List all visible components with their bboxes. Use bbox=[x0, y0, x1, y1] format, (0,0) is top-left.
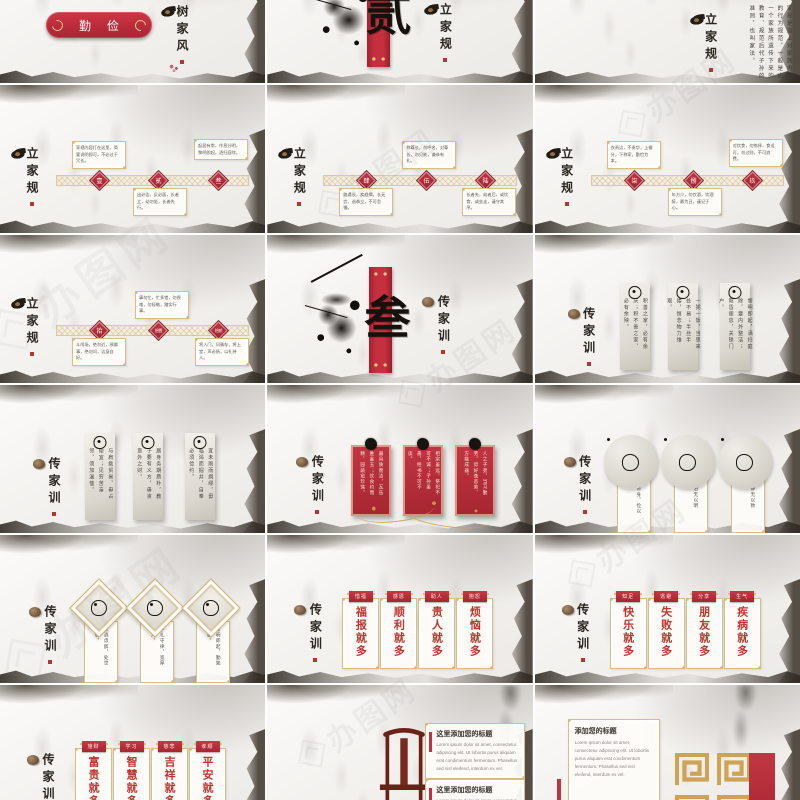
tab-card: 孝顺平安就多 bbox=[189, 748, 226, 800]
gold-flower-line-art bbox=[357, 499, 497, 529]
ink-seal-icon bbox=[203, 600, 219, 616]
card-tab: 感恩 bbox=[387, 591, 411, 602]
grid-cell: 传家训 与肩挑贸易，毋占便宜；见穷苦亲邻，须加温恤。 居身务期质朴，教子要有义方… bbox=[0, 385, 265, 533]
ink-walnut-icon bbox=[27, 750, 39, 769]
red-rectangle-block bbox=[749, 753, 775, 800]
grid-cell: 勤俭 树家风 bbox=[0, 0, 265, 83]
ink-walnut-icon bbox=[296, 452, 308, 471]
mountain-top-left bbox=[267, 535, 405, 561]
grid-cell: 叁 传家训 bbox=[267, 235, 532, 383]
slide-6-timeline[interactable]: 立家规 柒 捌 玖 衣贵洁，不贵华，上循分，下称家，勤俭为本。 对饮食，勿拣择，… bbox=[535, 85, 800, 233]
side-title-group: 立家规 bbox=[26, 147, 38, 206]
slide-15-tab-cards[interactable]: 传家训 知足快乐就多 逃避失败就多 分享朋友就多 生气疾病就多 bbox=[535, 535, 800, 683]
scroll-card: 黎明即起，洒扫庭除，要内外整洁；既昏便息，关锁门户。 bbox=[720, 283, 750, 370]
tab-card: 生气疾病就多 bbox=[724, 598, 761, 669]
ink-seal-icon bbox=[94, 436, 107, 449]
ink-walnut-icon bbox=[564, 452, 576, 471]
card-tab: 慈悲 bbox=[157, 741, 181, 752]
ink-bird-icon bbox=[424, 0, 439, 19]
mountain-top-left bbox=[0, 385, 138, 411]
scroll-card: 一粥一饭，当思来处不易；半丝半缕，恒念物力维艰。 bbox=[668, 283, 698, 370]
grid-cell: 添加您的标题 Lorem ipsum dolor sit amet, conse… bbox=[535, 685, 800, 800]
timeline-text-box: 将入门，问孰存，将上堂，声必扬，以礼待人。 bbox=[195, 338, 249, 366]
slide-title: 传家训 bbox=[48, 457, 60, 516]
card-value: 烦恼就多 bbox=[469, 606, 480, 668]
card-tab: 惜福 bbox=[349, 591, 373, 602]
timeline-band: 壹 贰 叁 bbox=[56, 175, 249, 186]
slide-11-red-cards[interactable]: 传家训 器具质而洁，瓦缶胜金玉；饮食约而精，园蔬愈珍馐。 祖宗虽远，祭祀不可不诚… bbox=[267, 385, 532, 533]
side-title-group: 传家训 bbox=[309, 603, 321, 662]
section-banner: 勤俭 bbox=[46, 12, 152, 38]
fret-pattern-icon bbox=[675, 753, 709, 787]
card-value: 吉祥就多 bbox=[164, 756, 175, 800]
fret-pattern-group bbox=[675, 753, 751, 800]
slide-title: 立家规 bbox=[26, 147, 38, 206]
tab-card: 逃避失败就多 bbox=[648, 598, 685, 669]
marker-numeral: 贰 bbox=[152, 174, 165, 187]
mountain-top-left bbox=[535, 235, 673, 261]
slide-3-vertical-text[interactable]: 立家规 家规是指上对家族内人的行为规范，一般是由一个家族所遗传下来的教育、规范后… bbox=[535, 0, 800, 83]
timeline-text-box: 衣贵洁，不贵华，上循分，下称家，勤俭为本。 bbox=[607, 141, 661, 169]
timeline-text-box: 斗闹场，绝勿近，邪僻事，绝勿问，洁身自好。 bbox=[72, 338, 126, 366]
slide-8-section-cover[interactable]: 叁 传家训 bbox=[267, 235, 532, 383]
side-title-group: 立家规 bbox=[293, 147, 305, 206]
ink-seal-icon bbox=[469, 438, 481, 450]
ink-walnut-icon bbox=[33, 454, 45, 473]
timeline-text-box: 起居有常，作息分明，黎明即起，洒扫庭除。 bbox=[194, 139, 248, 160]
marker-numeral: 拾贰 bbox=[212, 324, 225, 337]
card-text: 居身务期质朴，教子要有义方，毋贪意外之财。 bbox=[134, 448, 163, 500]
side-title-group: 立家规 bbox=[705, 13, 717, 72]
slide-title: 传家训 bbox=[42, 753, 54, 800]
ink-seal-icon bbox=[91, 600, 107, 616]
mountain-top-left bbox=[0, 235, 138, 261]
ink-seal-icon bbox=[365, 438, 377, 450]
slide-title: 立家规 bbox=[439, 3, 451, 62]
side-title-group: 传家训 bbox=[577, 603, 589, 662]
marker-numeral: 捌 bbox=[687, 174, 700, 187]
ink-walnut-icon bbox=[562, 600, 574, 619]
tab-card: 知足快乐就多 bbox=[610, 598, 647, 669]
slide-12-circle-cards[interactable]: 传家训 静以修身，俭以养德。 非淡泊无以明志。 非宁静无以致远。 bbox=[535, 385, 800, 533]
card-tab: 助人 bbox=[425, 591, 449, 602]
grid-cell: 这里添加您的标题 Lorem ipsum dolor sit amet, con… bbox=[267, 685, 532, 800]
section-number: 贰 bbox=[365, 0, 411, 37]
timeline-band: 柒 捌 玖 bbox=[591, 175, 784, 186]
grid-cell: 立家规 肆 伍 陆 称尊长，勿呼名，对尊长，勿见能，谦恭有礼。 路遇长，疾趋揖，… bbox=[267, 85, 532, 233]
card-value: 顺利就多 bbox=[393, 606, 404, 668]
card-value: 贵人就多 bbox=[431, 606, 442, 668]
side-title-group: 树家风 bbox=[176, 5, 188, 64]
slide-9-scroll-cards[interactable]: 传家训 积善之家，必有余庆；积不善之家，必有余殃。 一粥一饭，当思来处不易；半丝… bbox=[535, 235, 800, 383]
timeline-text-box: 事勿忙，忙多错，勿畏难，勿轻略，踏实行事。 bbox=[135, 291, 189, 319]
slide-5-timeline[interactable]: 立家规 肆 伍 陆 称尊长，勿呼名，对尊长，勿见能，谦恭有礼。 路遇长，疾趋揖，… bbox=[267, 85, 532, 233]
slide-13-diamond-cards[interactable]: 传家训 饮酒毋醉，处世毋骄。 学礼守律，宽厚待人。 黎明即起，勤勉自强。 bbox=[0, 535, 265, 683]
marker-numeral: 玖 bbox=[746, 174, 759, 187]
tab-card: 学习智慧就多 bbox=[113, 748, 150, 800]
grid-cell: 贰 立家规 bbox=[267, 0, 532, 83]
slide-title: 传家训 bbox=[579, 455, 591, 514]
mountain-top-left bbox=[267, 85, 405, 111]
tab-card: 感恩顺利就多 bbox=[380, 598, 417, 669]
ink-seal-icon bbox=[736, 454, 753, 471]
tab-card: 分享朋友就多 bbox=[686, 598, 723, 669]
mountain-top-left bbox=[535, 535, 673, 561]
side-title-group: 传家训 bbox=[42, 753, 54, 800]
scroll-card: 居身务期质朴，教子要有义方，毋贪意外之财。 bbox=[133, 433, 163, 520]
ink-seal-icon bbox=[147, 600, 163, 616]
card-value: 疾病就多 bbox=[737, 606, 748, 668]
slide-17-text-boxes[interactable]: 这里添加您的标题 Lorem ipsum dolor sit amet, con… bbox=[267, 685, 532, 800]
card-text: 黎明即起，洒扫庭除，要内外整洁；既昏便息，关锁门户。 bbox=[716, 298, 754, 350]
marker-numeral: 叁 bbox=[212, 174, 225, 187]
grid-cell: 立家规 家规是指上对家族内人的行为规范，一般是由一个家族所遗传下来的教育、规范后… bbox=[535, 0, 800, 83]
ink-walnut-icon bbox=[29, 602, 41, 621]
slide-14-tab-cards[interactable]: 传家训 惜福福报就多 感恩顺利就多 助人贵人就多 抱怨烦恼就多 bbox=[267, 535, 532, 683]
timeline-text-box: 出必告，反必面，长者立，幼勿坐，长者先行。 bbox=[133, 188, 187, 216]
timeline-band: 拾 拾壹 拾贰 bbox=[56, 325, 249, 336]
ink-circle-medallion bbox=[718, 435, 772, 489]
ink-bird-icon bbox=[278, 144, 293, 163]
box-title: 添加您的标题 bbox=[575, 726, 653, 736]
tab-card: 慈悲吉祥就多 bbox=[151, 748, 188, 800]
slide-4-timeline[interactable]: 立家规 壹 贰 叁 家规内容打在这里，简要说明即可，不必过于冗长。 起居有常，作… bbox=[0, 85, 265, 233]
marker-numeral: 陆 bbox=[479, 174, 492, 187]
side-title-group: 传家训 bbox=[583, 307, 595, 366]
ink-walnut-icon bbox=[568, 304, 580, 323]
mountain-top-left bbox=[535, 385, 673, 411]
mountain-top-left bbox=[267, 385, 405, 411]
side-title-group: 传家训 bbox=[437, 295, 449, 354]
slide-title: 传家训 bbox=[577, 603, 589, 662]
ink-seal-icon bbox=[194, 436, 207, 449]
card-text: 宜未雨而绸缪，毋临渴而掘井，自奉必须俭约。 bbox=[186, 448, 215, 500]
card-text: 积善之家，必有余庆；积不善之家，必有余殃。 bbox=[620, 298, 649, 350]
slide-title: 传家训 bbox=[44, 605, 56, 664]
card-tab: 生气 bbox=[730, 591, 754, 602]
ink-bird-icon bbox=[11, 294, 26, 313]
ink-seal-icon bbox=[417, 438, 429, 450]
timeline-text-box: 家规内容打在这里，简要说明即可，不必过于冗长。 bbox=[72, 141, 126, 169]
marker-numeral: 柒 bbox=[628, 174, 641, 187]
card-text: 一粥一饭，当思来处不易；半丝半缕，恒念物力维艰。 bbox=[664, 298, 702, 350]
grid-cell: 传家训 静以修身，俭以养德。 非淡泊无以明志。 非宁静无以致远。 bbox=[535, 385, 800, 533]
card-tab: 施财 bbox=[81, 741, 105, 752]
scroll-card: 积善之家，必有余庆；积不善之家，必有余殃。 bbox=[620, 283, 650, 370]
ink-seal-icon bbox=[142, 436, 155, 449]
box-title: 这里添加您的标题 bbox=[436, 729, 518, 739]
slide-title: 立家规 bbox=[561, 147, 573, 206]
slide-title: 立家规 bbox=[26, 297, 38, 356]
ink-walnut-icon bbox=[422, 292, 434, 311]
ink-seal-icon bbox=[679, 454, 696, 471]
fret-pattern-icon bbox=[717, 753, 751, 787]
card-tab: 抱怨 bbox=[463, 591, 487, 602]
grid-cell: 传家训 知足快乐就多 逃避失败就多 分享朋友就多 生气疾病就多 bbox=[535, 535, 800, 683]
ink-bird-icon bbox=[690, 10, 705, 29]
slide-7-timeline[interactable]: 立家规 拾 拾壹 拾贰 事勿忙，忙多错，勿畏难，勿轻略，踏实行事。 斗闹场，绝勿… bbox=[0, 235, 265, 383]
card-value: 平安就多 bbox=[202, 756, 213, 800]
slides-grid: 勤俭 树家风 贰 立家规 立家 bbox=[0, 0, 800, 800]
mountain-top-left bbox=[0, 85, 138, 111]
card-value: 福报就多 bbox=[355, 606, 366, 668]
box-title: 这里添加您的标题 bbox=[436, 785, 518, 795]
card-tab: 逃避 bbox=[654, 591, 678, 602]
content-box: 这里添加您的标题 Lorem ipsum dolor sit amet, con… bbox=[425, 779, 525, 800]
side-title-group: 立家规 bbox=[561, 147, 573, 206]
marker-numeral: 拾壹 bbox=[152, 324, 165, 337]
side-title-group: 传家训 bbox=[579, 455, 591, 514]
content-box: 这里添加您的标题 Lorem ipsum dolor sit amet, con… bbox=[425, 723, 525, 779]
marker-numeral: 伍 bbox=[420, 174, 433, 187]
marker-numeral: 壹 bbox=[93, 174, 106, 187]
slide-title: 传家训 bbox=[583, 307, 595, 366]
section-number: 叁 bbox=[364, 295, 410, 341]
ink-bird-icon bbox=[11, 144, 26, 163]
mountain-top-left bbox=[0, 535, 138, 561]
scroll-card: 与肩挑贸易，毋占便宜；见穷苦亲邻，须加温恤。 bbox=[85, 433, 115, 520]
red-accent-bar bbox=[429, 788, 432, 800]
slide-16-tab-cards[interactable]: 传家训 施财富贵就多 学习智慧就多 慈悲吉祥就多 孝顺平安就多 bbox=[0, 685, 265, 800]
grid-cell: 立家规 壹 贰 叁 家规内容打在这里，简要说明即可，不必过于冗长。 起居有常，作… bbox=[0, 85, 265, 233]
tab-card: 惜福福报就多 bbox=[342, 598, 379, 669]
mountain-top-left bbox=[267, 685, 405, 711]
plum-blossom-icon bbox=[168, 63, 180, 72]
marker-numeral: 肆 bbox=[360, 174, 373, 187]
fret-pattern-icon bbox=[675, 795, 709, 800]
ink-seal-icon bbox=[628, 286, 641, 299]
slide-title: 树家风 bbox=[176, 5, 188, 64]
box-body: Lorem ipsum dolor sit amet, consectetur … bbox=[436, 741, 518, 773]
mountain-top-left bbox=[535, 685, 673, 711]
card-tab: 学习 bbox=[119, 741, 143, 752]
side-title-group: 传家训 bbox=[44, 605, 56, 664]
tab-card: 施财富贵就多 bbox=[75, 748, 112, 800]
slide-10-scroll-cards[interactable]: 传家训 与肩挑贸易，毋占便宜；见穷苦亲邻，须加温恤。 居身务期质朴，教子要有义方… bbox=[0, 385, 265, 533]
grid-cell: 传家训 施财富贵就多 学习智慧就多 慈悲吉祥就多 孝顺平安就多 bbox=[0, 685, 265, 800]
grid-cell: 传家训 器具质而洁，瓦缶胜金玉；饮食约而精，园蔬愈珍馐。 祖宗虽远，祭祀不可不诚… bbox=[267, 385, 532, 533]
timeline-text-box: 对饮食，勿拣择，食适可，勿过则，不可浪费。 bbox=[729, 139, 783, 167]
box-body: Lorem ipsum dolor sit amet, consectetur … bbox=[575, 739, 653, 778]
slide-title: 传家训 bbox=[311, 455, 323, 514]
side-title-group: 传家训 bbox=[311, 455, 323, 514]
grid-cell: 传家训 惜福福报就多 感恩顺利就多 助人贵人就多 抱怨烦恼就多 bbox=[267, 535, 532, 683]
grid-cell: 传家训 饮酒毋醉，处世毋骄。 学礼守律，宽厚待人。 黎明即起，勤勉自强。 bbox=[0, 535, 265, 683]
mountain-top-left bbox=[0, 685, 138, 711]
ink-seal-icon bbox=[622, 454, 639, 471]
mountain-top-left bbox=[267, 235, 405, 261]
fret-pattern-icon bbox=[717, 795, 751, 800]
card-tab: 分享 bbox=[692, 591, 716, 602]
mountain-top-left bbox=[535, 85, 673, 111]
card-value: 智慧就多 bbox=[126, 756, 137, 800]
side-title-group: 传家训 bbox=[48, 457, 60, 516]
red-accent-bar bbox=[557, 779, 561, 800]
tab-card: 助人贵人就多 bbox=[418, 598, 455, 669]
slide-2-section-cover[interactable]: 贰 立家规 bbox=[267, 0, 532, 83]
ink-walnut-icon bbox=[294, 600, 306, 619]
marker-numeral: 拾 bbox=[93, 324, 106, 337]
ink-circle-medallion bbox=[604, 435, 658, 489]
card-tab: 孝顺 bbox=[195, 741, 219, 752]
content-box: 添加您的标题 Lorem ipsum dolor sit amet, conse… bbox=[568, 719, 660, 800]
ink-circle-medallion bbox=[661, 435, 715, 489]
ink-bird-icon bbox=[161, 2, 176, 21]
ink-seal-icon bbox=[728, 286, 741, 299]
timeline-text-box: 路遇长，疾趋揖，长无言，退恭立，不可怠慢。 bbox=[339, 188, 393, 216]
grid-cell: 传家训 积善之家，必有余庆；积不善之家，必有余殃。 一粥一饭，当思来处不易；半丝… bbox=[535, 235, 800, 383]
slide-title: 立家规 bbox=[705, 13, 717, 72]
timeline-band: 肆 伍 陆 bbox=[323, 175, 516, 186]
slide-1-banner-content[interactable]: 勤俭 树家风 bbox=[0, 0, 265, 83]
timeline-text-box: 称尊长，勿呼名，对尊长，勿见能，谦恭有礼。 bbox=[402, 141, 456, 169]
slide-title: 传家训 bbox=[437, 295, 449, 354]
timeline-text-box: 年方少，勿饮酒，饮酒醉，最为丑，谨记于心。 bbox=[668, 188, 722, 216]
card-value: 快乐就多 bbox=[623, 606, 634, 668]
vertical-body-text: 家规是指上对家族内人的行为规范，一般是由一个家族所遗传下来的教育、规范后代子孙的… bbox=[731, 5, 793, 81]
card-text: 人之子弟，当习勤劳，毋好逸恶劳，方能成器。 bbox=[462, 451, 490, 499]
tab-card: 抱怨烦恼就多 bbox=[456, 598, 493, 669]
grid-cell: 立家规 柒 捌 玖 衣贵洁，不贵华，上循分，下称家，勤俭为本。 对饮食，勿拣择，… bbox=[535, 85, 800, 233]
grid-cell: 立家规 拾 拾壹 拾贰 事勿忙，忙多错，勿畏难，勿轻略，踏实行事。 斗闹场，绝勿… bbox=[0, 235, 265, 383]
ink-bird-icon bbox=[546, 144, 561, 163]
slide-18-pattern[interactable]: 添加您的标题 Lorem ipsum dolor sit amet, conse… bbox=[535, 685, 800, 800]
side-title-group: 立家规 bbox=[26, 297, 38, 356]
card-value: 富贵就多 bbox=[88, 756, 99, 800]
timeline-text-box: 长者先，幼者后，或饮食，或坐走，谨守其序。 bbox=[462, 188, 516, 216]
scroll-card: 宜未雨而绸缪，毋临渴而掘井，自奉必须俭约。 bbox=[185, 433, 215, 520]
slide-title: 传家训 bbox=[309, 603, 321, 662]
card-tab: 知足 bbox=[616, 591, 640, 602]
card-value: 失败就多 bbox=[661, 606, 672, 668]
slide-title: 立家规 bbox=[293, 147, 305, 206]
card-value: 朋友就多 bbox=[699, 606, 710, 668]
card-text: 祖宗虽远，祭祀不可不诚；子孙虽愚，经书不可不读。 bbox=[405, 451, 442, 499]
side-title-group: 立家规 bbox=[439, 3, 451, 62]
card-text: 与肩挑贸易，毋占便宜；见穷苦亲邻，须加温恤。 bbox=[86, 448, 115, 500]
ink-seal-icon bbox=[676, 286, 689, 299]
card-text: 器具质而洁，瓦缶胜金玉；饮食约而精，园蔬愈珍馐。 bbox=[358, 451, 386, 499]
red-accent-bar bbox=[429, 732, 432, 752]
